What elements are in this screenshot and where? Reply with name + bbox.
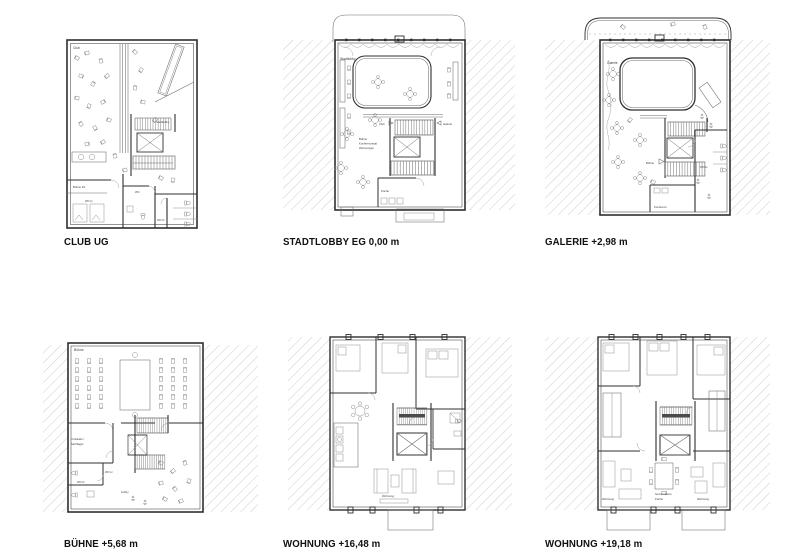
label-club: Club <box>379 122 385 126</box>
pilasters <box>346 335 447 514</box>
living-left <box>603 461 641 499</box>
label-wohnung-rechts: Wohnung <box>697 497 709 501</box>
central-lounge <box>353 56 431 108</box>
hatch-right <box>203 345 258 512</box>
plan-wohnung-16: Wohnung <box>288 331 512 541</box>
label-note1: Bühne <box>359 137 368 141</box>
label-umkleide2: Stuhllager <box>71 442 84 446</box>
label-note2: Konferenzsaal <box>359 142 377 146</box>
plan-wohnung-19: Wohnung Gemeinsame Küche Wohnung <box>545 331 770 541</box>
bar-shelving <box>120 44 128 153</box>
awning-scallops <box>339 44 459 48</box>
hatch-left <box>545 40 600 215</box>
room-walls <box>598 337 730 451</box>
elevator-icon <box>394 137 420 157</box>
label-konferenz: Konferenz <box>654 205 667 209</box>
caption-club-ug: CLUB UG <box>64 236 109 248</box>
stair-icon <box>393 403 431 461</box>
label-buehne: Bühne <box>74 348 84 352</box>
canopy-outline <box>333 15 465 42</box>
balcony-right <box>682 510 725 530</box>
label-wc-h: WC H <box>105 470 112 474</box>
wc-room <box>688 130 727 212</box>
elevator-icon <box>137 133 163 152</box>
kitchen <box>334 423 358 467</box>
beds <box>603 341 725 375</box>
label-buehne: Bühne <box>646 161 655 165</box>
canopy-outline <box>585 18 731 40</box>
elevator-icon <box>128 435 147 455</box>
hatch-left <box>545 337 598 510</box>
plan-galerie: Galerie Bühne WC H Konferenz <box>545 10 770 232</box>
label-kueche: Küche <box>655 497 663 501</box>
label-wc: WC <box>135 190 140 194</box>
void-opening <box>620 58 695 110</box>
label-lobby: Lobby <box>121 490 129 494</box>
dining-table <box>351 402 368 421</box>
balcony <box>388 510 433 530</box>
angled-table <box>158 44 184 96</box>
caption-wohnung-19: WOHNUNG +19,18 m <box>545 538 642 550</box>
label-wc-d: WC D <box>157 218 164 222</box>
beds <box>336 343 458 377</box>
living-right <box>691 463 725 493</box>
hatch-right <box>465 40 515 210</box>
label-umkleide1: Umkleide / <box>71 437 84 441</box>
plan-club-ug: Club Stadtlobby Bühne DJ WC H WC WC D <box>63 36 203 234</box>
lobby-chairs <box>131 461 191 505</box>
label-stadtlobby: Stadtlobby <box>340 57 356 61</box>
stair-icon <box>135 415 168 473</box>
hatch-right <box>730 40 770 215</box>
awning-scallops <box>605 44 725 48</box>
caption-stadtlobby: STADTLOBBY EG 0,00 m <box>283 236 399 248</box>
floor-plan-sheet: Club Stadtlobby Bühne DJ WC H WC WC D CL… <box>0 0 800 559</box>
caption-buehne: BÜHNE +5,68 m <box>64 538 138 550</box>
kitchen-counter <box>72 152 106 162</box>
elevator-icon <box>667 138 693 158</box>
bathroom <box>426 409 465 449</box>
plan-buehne: Bühne Umkleide / Stuhllager WC H WC D Lo… <box>43 333 258 541</box>
label-wc-d: WC D <box>77 480 84 484</box>
hatch-left <box>283 40 335 210</box>
caption-wohnung-16: WOHNUNG +16,48 m <box>283 538 380 550</box>
hatch-left <box>288 337 330 510</box>
label-stair-note: Stadtlobby <box>156 120 170 124</box>
label-wohnung: Wohnung <box>382 494 394 498</box>
label-wohnung-links: Wohnung <box>602 497 614 501</box>
elevator-icon <box>397 433 427 455</box>
label-note3: Wohnungen <box>359 146 374 150</box>
round-tables <box>334 75 416 188</box>
audience-chairs <box>75 359 186 408</box>
label-wc-h: WC H <box>85 199 92 203</box>
wc-fixtures <box>73 201 197 226</box>
dining-center <box>649 457 678 494</box>
elevator-icon <box>660 435 690 455</box>
hatch-right <box>730 337 770 510</box>
wc-rooms <box>68 463 103 497</box>
label-kueche: Küche <box>381 189 389 193</box>
stage <box>120 353 150 418</box>
label-wc-h: WC H <box>700 165 707 169</box>
stair-icon <box>390 118 435 176</box>
stair-icon <box>656 401 695 461</box>
round-tables <box>602 67 646 184</box>
label-club: Club <box>73 46 80 50</box>
stair-icon <box>665 118 707 178</box>
room-walls <box>330 337 465 424</box>
label-buehne-dj: Bühne DJ <box>73 185 86 189</box>
label-gemeinsame: Gemeinsame <box>655 492 672 496</box>
plan-stadtlobby: Stadtlobby Club Galerie Bühne Konferenzs… <box>283 10 515 232</box>
hatch-right <box>465 337 512 510</box>
label-galerie: Galerie <box>443 122 452 126</box>
pilasters <box>609 335 716 514</box>
caption-galerie: GALERIE +2,98 m <box>545 236 628 248</box>
hatch-left <box>43 345 68 512</box>
angled-furniture <box>695 82 721 127</box>
label-galerie: Galerie <box>607 61 618 65</box>
